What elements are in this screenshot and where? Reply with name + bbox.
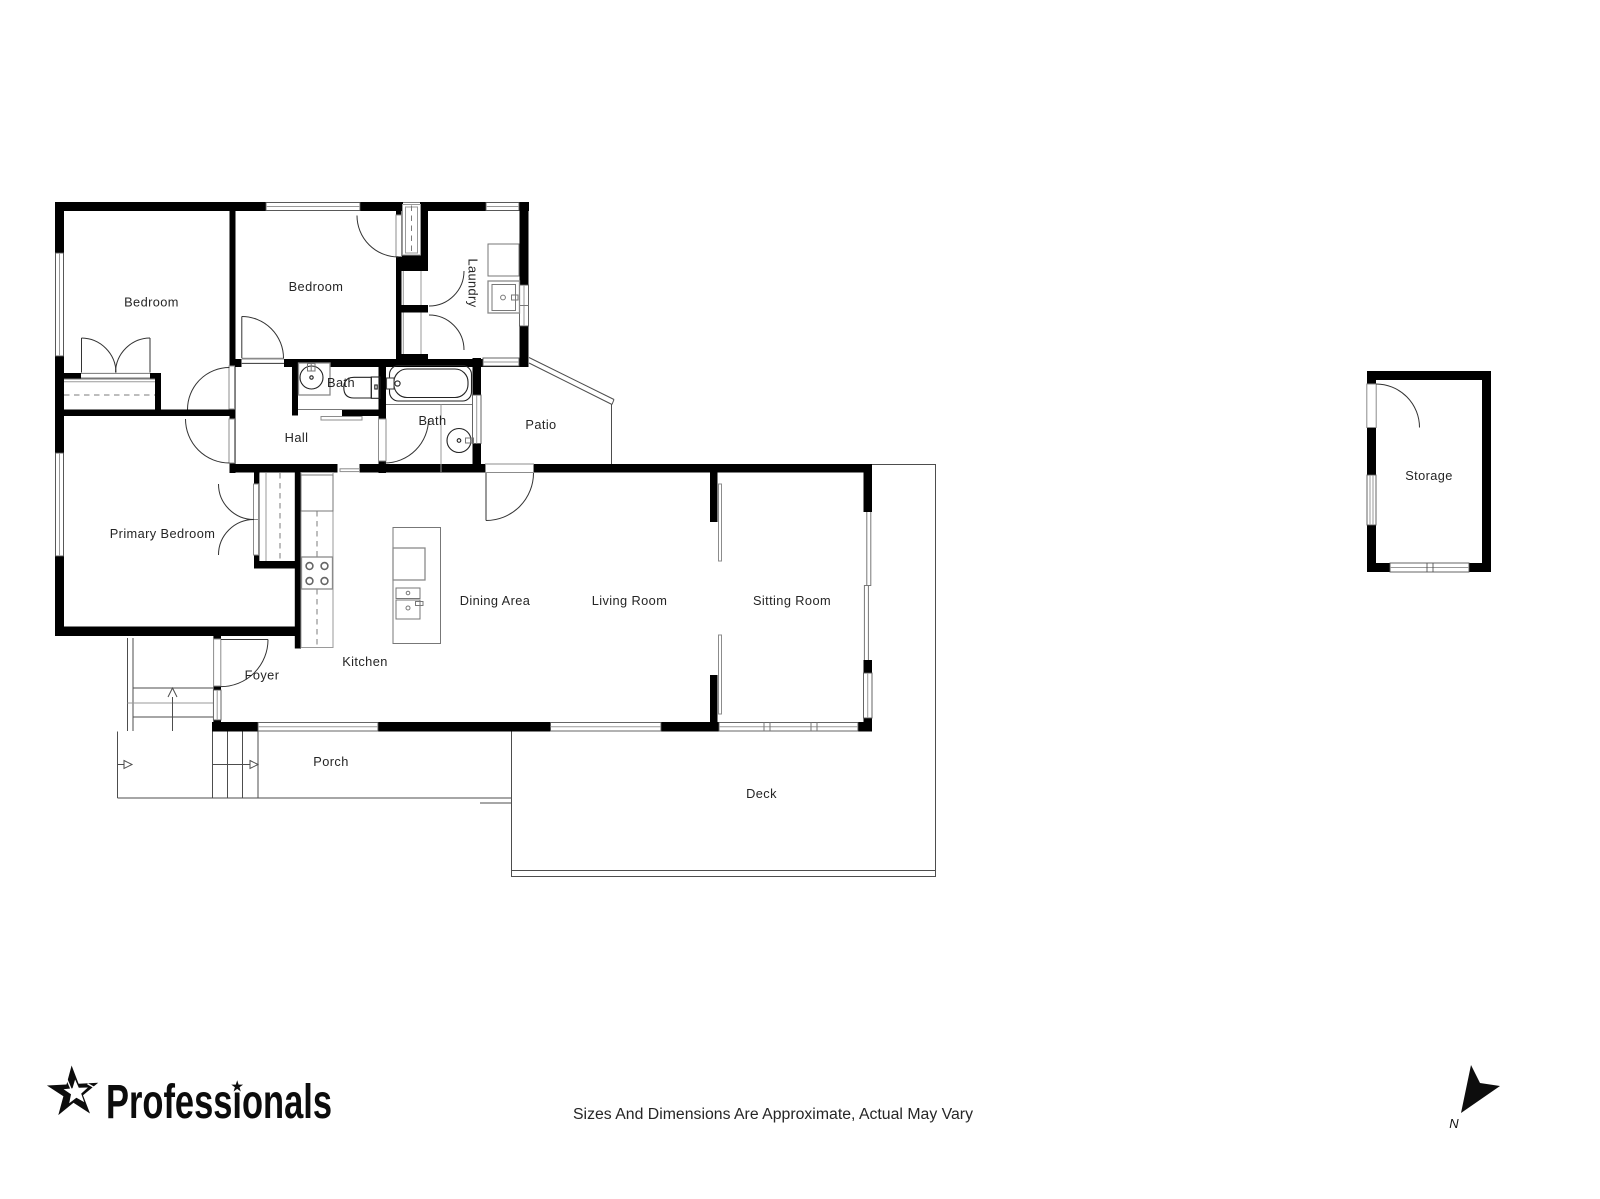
svg-text:Foyer: Foyer xyxy=(245,668,280,683)
svg-text:Hall: Hall xyxy=(285,430,309,445)
svg-text:Deck: Deck xyxy=(746,786,777,801)
svg-text:Sitting Room: Sitting Room xyxy=(753,593,831,608)
svg-text:Storage: Storage xyxy=(1405,468,1453,483)
svg-text:Sizes And Dimensions Are Appro: Sizes And Dimensions Are Approximate, Ac… xyxy=(573,1106,973,1123)
svg-text:Primary Bedroom: Primary Bedroom xyxy=(110,526,216,541)
svg-text:N: N xyxy=(1449,1116,1459,1131)
svg-text:Dining Area: Dining Area xyxy=(460,593,531,608)
svg-text:Kitchen: Kitchen xyxy=(342,654,387,669)
svg-text:Bath: Bath xyxy=(327,375,355,390)
svg-text:Living Room: Living Room xyxy=(592,593,668,608)
svg-text:Bedroom: Bedroom xyxy=(124,295,179,310)
svg-text:Laundry: Laundry xyxy=(466,258,481,307)
svg-text:Professionals: Professionals xyxy=(106,1076,332,1129)
svg-text:Bath: Bath xyxy=(419,413,447,428)
svg-text:Bedroom: Bedroom xyxy=(289,279,344,294)
svg-text:Patio: Patio xyxy=(525,417,556,432)
svg-text:Porch: Porch xyxy=(313,754,348,769)
